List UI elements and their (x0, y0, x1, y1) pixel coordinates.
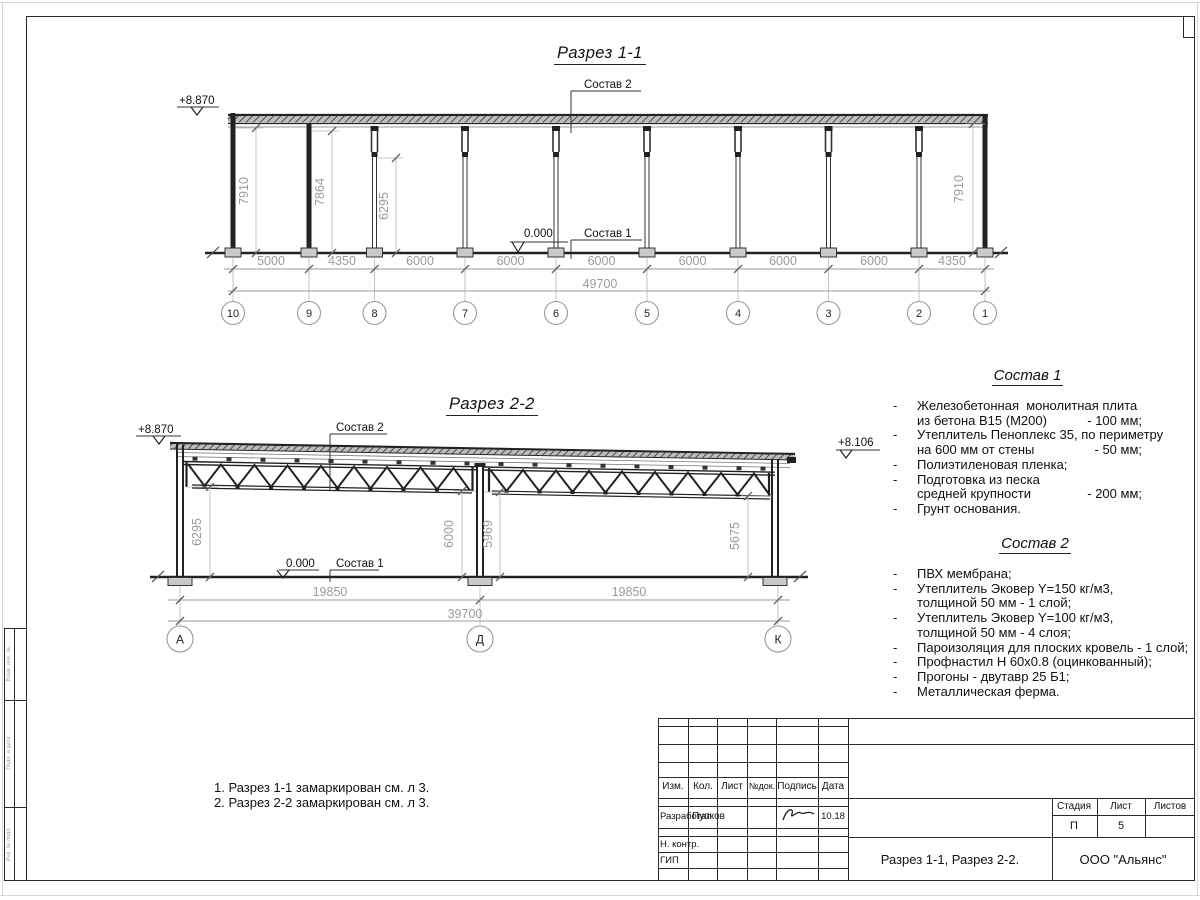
dim-text: 19850 (313, 585, 348, 599)
total-dim-text: 49700 (583, 277, 618, 291)
vdim-text: 5675 (728, 522, 742, 550)
total-dim-text: 39700 (448, 607, 483, 621)
section-1-1: 5000 4350 6000 6000 6000 6000 6000 6000 … (177, 79, 1008, 325)
grid-label: 4 (735, 308, 741, 320)
sostav-line: -Железобетонная монолитная плита (885, 399, 1170, 414)
vdim-text: 6295 (377, 192, 391, 220)
sostav-line: из бетона В15 (М200)- 100 мм; (885, 414, 1170, 429)
grid-label: 9 (306, 308, 312, 320)
dim-text: 6000 (497, 254, 525, 268)
stamp-org: ООО "Альянс" (1080, 852, 1167, 867)
sostav-line: толщиной 50 мм - 1 слой; (885, 596, 1185, 611)
sostav-line: -Полиэтиленовая пленка; (885, 458, 1170, 473)
sostav2-leader-label: Состав 2 (336, 422, 384, 434)
vdim-text: 7910 (952, 175, 966, 203)
level-mark-icon (512, 242, 524, 252)
section1-grid-bubbles (222, 302, 997, 325)
sostav1-leader-label: Состав 1 (584, 228, 632, 240)
sostav-line: -Утеплитель Пеноплекс 35, по периметру (885, 428, 1170, 443)
stamp-developed-name: Пупков (692, 811, 725, 822)
section2-truss-span2 (483, 467, 775, 499)
grid-label: 3 (825, 308, 831, 320)
dim-text: 4350 (938, 254, 966, 268)
vdim-text: 7910 (237, 177, 251, 205)
sostav1-leader-label: Состав 1 (336, 558, 384, 570)
elevation-mark-icon (191, 107, 203, 115)
stamp-col-ndok: №док. (749, 781, 775, 791)
section2-columns (177, 444, 778, 577)
sostav-line: -Прогоны - двутавр 25 Б1; (885, 670, 1185, 685)
stamp-stage-value: П (1070, 820, 1078, 832)
sostav-line: -Металлическая ферма. (885, 685, 1185, 700)
stamp-col-izm: Изм. (662, 781, 683, 792)
elevation-label: +8.106 (838, 437, 874, 449)
grid-label: 1 (982, 308, 988, 320)
grid-label: К (775, 633, 782, 647)
dim-text: 19850 (612, 585, 647, 599)
section-2-2: 19850 19850 39700 А Д К (136, 422, 880, 652)
sostav2-title: Состав 2 (885, 535, 1185, 554)
sostav-line: -Грунт основания. (885, 502, 1170, 517)
elevation-mark-icon (840, 450, 852, 458)
stamp-col-data: Дата (822, 781, 844, 792)
vdim-text: 5969 (481, 520, 495, 548)
grid-label: 10 (227, 308, 239, 320)
elevation-label: +8.870 (179, 95, 215, 107)
section1-labels: Состав 2 Состав 1 0.000 +8.870 (177, 79, 642, 259)
note-line: 1. Разрез 1-1 замаркирован см. л 3. (214, 781, 429, 796)
notes-block: 1. Разрез 1-1 замаркирован см. л 3. 2. Р… (214, 781, 429, 810)
vdim-text: 6000 (442, 520, 456, 548)
sostav-line: средней крупности- 200 мм; (885, 487, 1170, 502)
stamp-stage-label: Стадия (1057, 801, 1091, 812)
elevation-label: +8.870 (138, 424, 174, 436)
section2-grid-labels: А Д К (176, 633, 782, 647)
section2-total-dim: 39700 (168, 607, 790, 625)
section2-dim-line: 19850 19850 (168, 585, 790, 604)
vdim-text: 6295 (190, 518, 204, 546)
section1-dim-line: 5000 4350 6000 6000 6000 6000 6000 6000 … (224, 254, 994, 273)
stamp-col-podpis: Подпись (777, 781, 817, 792)
elevation-mark-icon (153, 436, 165, 444)
section1-grid-labels: 10 9 8 7 6 5 4 3 2 1 (227, 308, 988, 320)
stamp-doc-title: Разрез 1-1, Разрез 2-2. (881, 852, 1019, 867)
dim-text: 4350 (328, 254, 356, 268)
stamp-sheet-label: Лист (1110, 801, 1132, 812)
sostav-line: на 600 мм от стены- 50 мм; (885, 443, 1170, 458)
sostav-line: толщиной 50 мм - 4 слоя; (885, 626, 1185, 641)
sostav2-block: Состав 2 -ПВХ мембрана; -Утеплитель Эков… (885, 535, 1185, 699)
dim-text: 6000 (588, 254, 616, 268)
stamp-sheet-value: 5 (1118, 820, 1124, 832)
stamp-col-list: Лист (721, 781, 743, 792)
sostav-line: -Пароизоляция для плоских кровель - 1 сл… (885, 641, 1185, 656)
sostav-line: -Профнастил Н 60х0.8 (оцинкованный); (885, 655, 1185, 670)
stamp-gip-label: ГИП (660, 855, 679, 866)
signature (779, 805, 817, 825)
drawing-sheet: Взам. инв. № Подп. и дата Инв. № подл. Р… (0, 0, 1200, 900)
zero-level-label: 0.000 (524, 228, 553, 240)
dim-text: 6000 (679, 254, 707, 268)
vdim-text: 7864 (313, 178, 327, 206)
sostav2-leader-label: Состав 2 (584, 79, 632, 91)
sostav1-title: Состав 1 (885, 367, 1170, 386)
grid-label: 8 (371, 308, 377, 320)
sostav-line: -Утеплитель Эковер Y=100 кг/м3, (885, 611, 1185, 626)
section1-interior-columns (371, 126, 924, 248)
grid-label: 7 (462, 308, 468, 320)
dim-text: 6000 (769, 254, 797, 268)
sostav-line: -Подготовка из песка (885, 473, 1170, 488)
grid-label: 5 (644, 308, 650, 320)
grid-label: Д (476, 633, 484, 647)
sostav-line: -Утеплитель Эковер Y=150 кг/м3, (885, 582, 1185, 597)
zero-level-label: 0.000 (286, 558, 315, 570)
grid-label: 2 (916, 308, 922, 320)
section2-footings (168, 578, 787, 586)
stamp-date: 10.18 (821, 811, 845, 822)
section1-roof (228, 115, 988, 127)
grid-label: А (176, 633, 184, 647)
sostav1-block: Состав 1 -Железобетонная монолитная плит… (885, 367, 1170, 517)
stamp-col-kol: Кол. (693, 781, 713, 792)
stamp-ncontr-label: Н. контр. (660, 839, 699, 850)
grid-label: 6 (553, 308, 559, 320)
section1-total-dim: 49700 (228, 277, 990, 295)
stamp-sheets-label: Листов (1154, 801, 1187, 812)
sostav-line: -ПВХ мембрана; (885, 567, 1185, 582)
note-line: 2. Разрез 2-2 замаркирован см. л 3. (214, 796, 429, 811)
dim-text: 6000 (406, 254, 434, 268)
dim-text: 6000 (860, 254, 888, 268)
dim-text: 5000 (257, 254, 285, 268)
